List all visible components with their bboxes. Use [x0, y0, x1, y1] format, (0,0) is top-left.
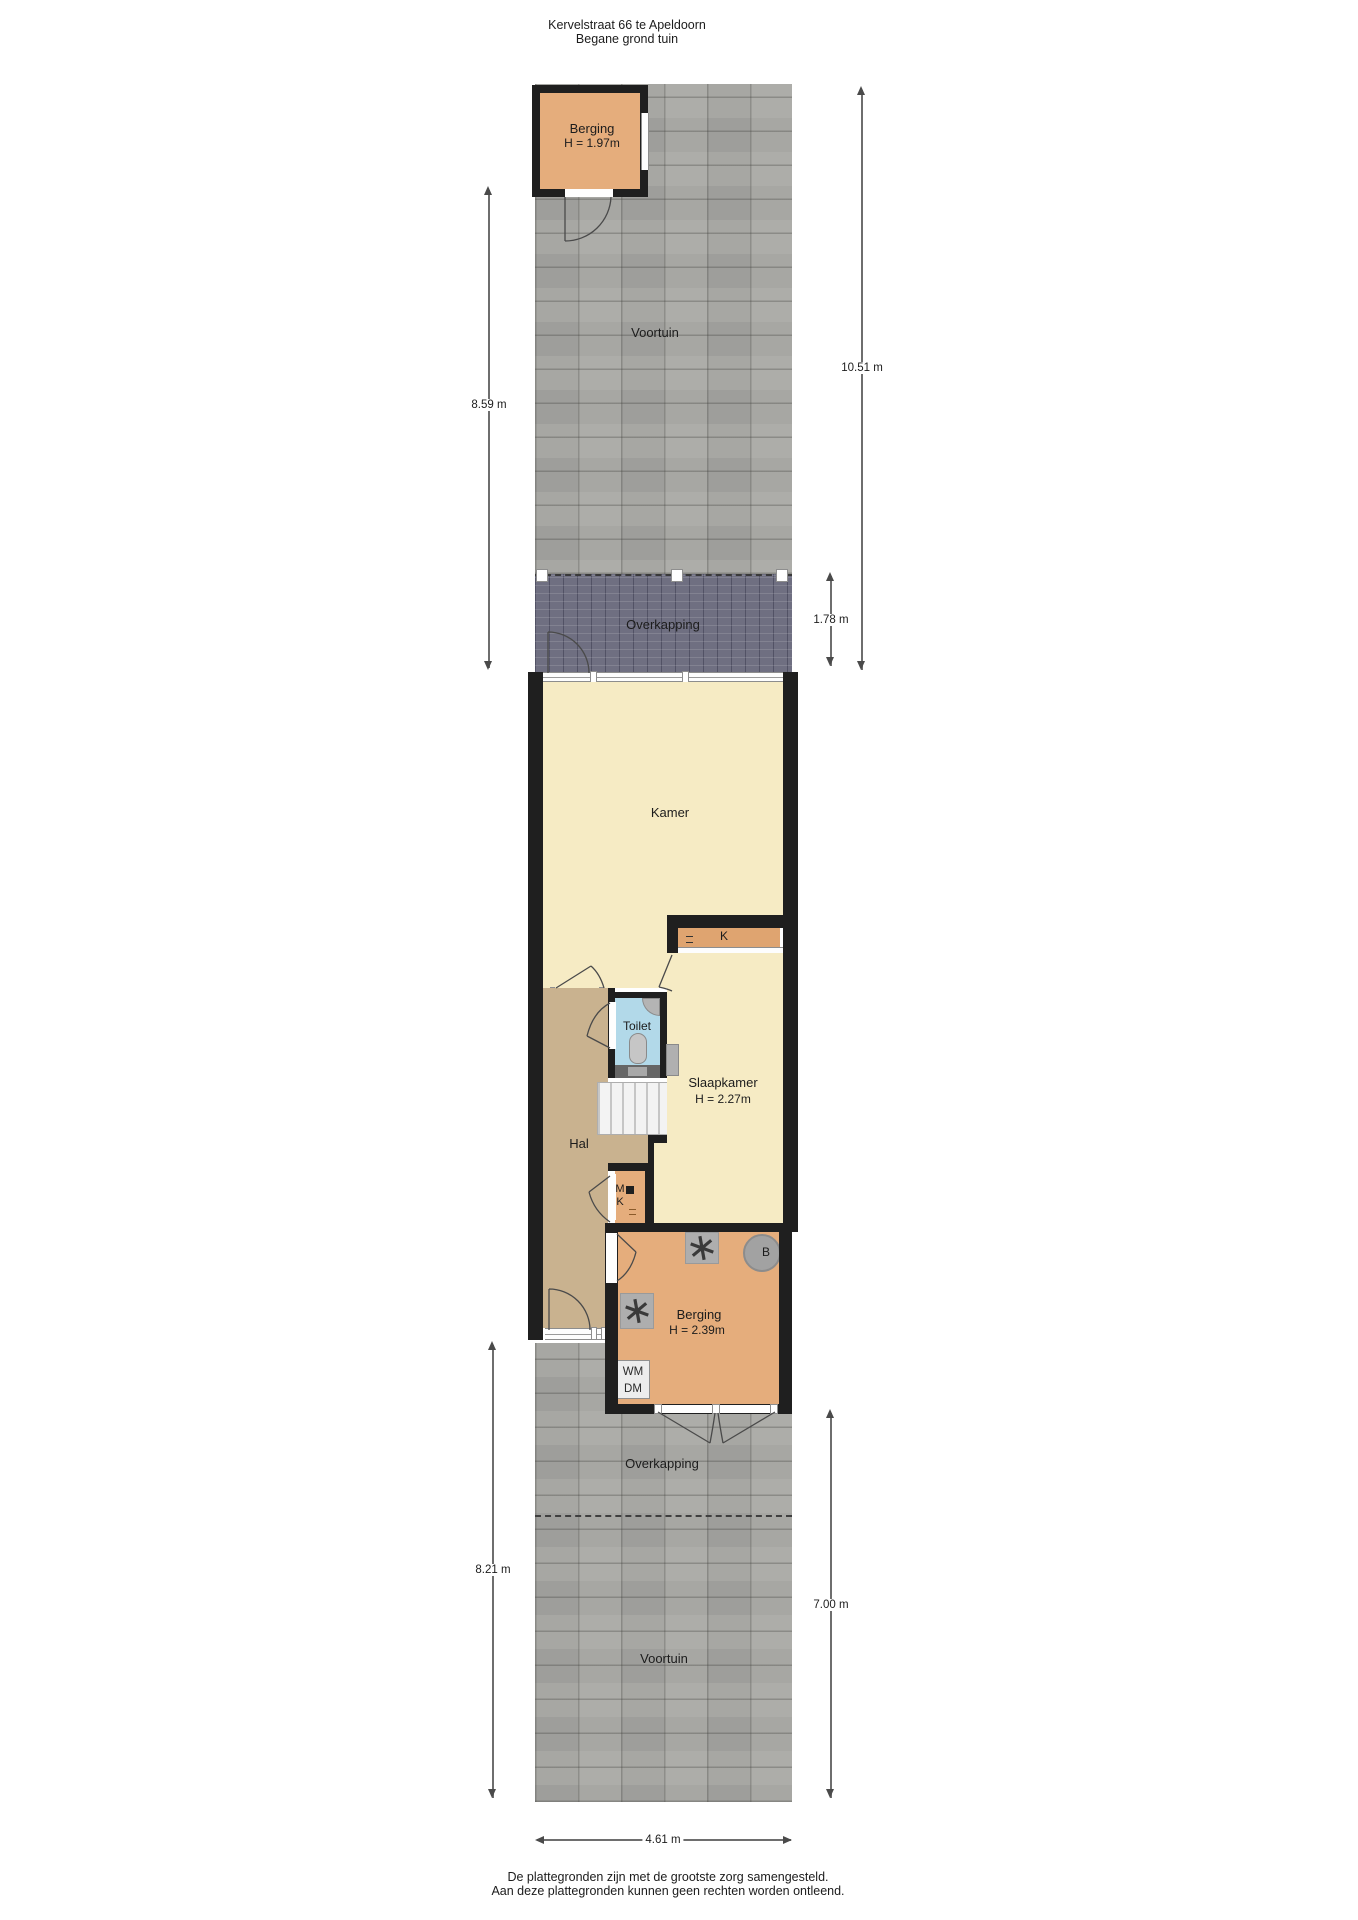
house-wall-left: [528, 672, 543, 1340]
berging-top-door-opening: [565, 189, 613, 197]
disclaimer-line1: De plattegronden zijn met de grootste zo…: [507, 1870, 828, 1884]
patio-post: [671, 569, 683, 582]
arrowhead-icon: [484, 661, 492, 670]
arrowhead-icon: [857, 661, 865, 670]
floorplan-page: Kervelstraat 66 te Apeldoorn Begane gron…: [0, 0, 1358, 1920]
meterkast-mark: [629, 1209, 636, 1215]
radiator-icon: [666, 1044, 679, 1076]
overkapping-voortuin-boundary: [535, 1515, 792, 1517]
meterkast-label-m: M: [615, 1183, 624, 1196]
arrowhead-icon: [484, 186, 492, 195]
kitchen-counter: [678, 928, 780, 947]
kitchen-wall-left: [667, 928, 678, 954]
kitchen-label: K: [720, 930, 728, 944]
door-jamb: [654, 1404, 662, 1414]
berging-bottom-height-label: H = 2.39m: [669, 1324, 725, 1338]
kamer-floor: [543, 682, 783, 922]
toilet-cistern: [628, 1067, 647, 1076]
berging-bottom-wall-right: [779, 1223, 792, 1413]
hal-label: Hal: [569, 1137, 589, 1152]
dim-label-bottom-width: 4.61 m: [642, 1834, 683, 1846]
washer-dryer-box: WM DM: [616, 1360, 650, 1399]
facade-window-front: [545, 1328, 608, 1340]
overkapping-top-label: Overkapping: [626, 618, 700, 633]
dim-line-right-top: [861, 90, 863, 670]
meterkast-wall-top: [608, 1163, 654, 1171]
arrowhead-icon: [826, 1789, 834, 1798]
meterkast-door-opening: [608, 1174, 616, 1220]
dryer-label: DM: [617, 1381, 649, 1398]
kitchen-wall-top: [667, 915, 783, 928]
arrowhead-icon: [535, 1836, 544, 1844]
door-jamb: [770, 1404, 778, 1414]
berging-top-window: [641, 113, 649, 170]
slaapkamer-label: Slaapkamer: [688, 1076, 757, 1091]
toilet-bowl-icon: [629, 1033, 647, 1064]
kamer-label: Kamer: [651, 806, 689, 821]
toilet-label: Toilet: [623, 1020, 651, 1034]
hal-floor: [543, 988, 608, 1328]
dim-label-overkapping: 1.78 m: [810, 614, 851, 626]
arrowhead-icon: [826, 1409, 834, 1418]
window-mullion: [591, 1327, 597, 1340]
ventilation-fan-icon: [685, 1232, 719, 1264]
dim-line-left-top: [488, 190, 490, 668]
arrowhead-icon: [826, 572, 834, 581]
voortuin-bottom-label: Voortuin: [640, 1652, 688, 1667]
toilet-door-opening: [609, 1002, 616, 1049]
cooktop-icon: [686, 936, 693, 943]
voortuin-top-label: Voortuin: [631, 326, 679, 341]
dim-label-right-bottom: 7.00 m: [810, 1599, 851, 1611]
berging-top-height-label: H = 1.97m: [564, 137, 620, 151]
arrowhead-icon: [857, 86, 865, 95]
patio-post: [776, 569, 788, 582]
berging-bottom-wall-top: [608, 1223, 792, 1232]
slaapkamer-height-label: H = 2.27m: [695, 1093, 751, 1107]
ventilation-fan-icon: [620, 1293, 654, 1329]
disclaimer-line2: Aan deze plattegronden kunnen geen recht…: [491, 1884, 844, 1898]
house-wall-right: [783, 672, 798, 1232]
facade-window-top: [543, 672, 783, 682]
arrowhead-icon: [826, 657, 834, 666]
meter-box-icon: [626, 1186, 634, 1194]
dim-label-left-top: 8.59 m: [468, 399, 509, 411]
washer-label: WM: [617, 1364, 649, 1381]
boiler-label: B: [762, 1246, 770, 1260]
page-title: Kervelstraat 66 te Apeldoorn: [548, 18, 706, 32]
dim-label-left-bottom: 8.21 m: [472, 1564, 513, 1576]
page-subtitle: Begane grond tuin: [576, 32, 678, 46]
arrowhead-icon: [488, 1789, 496, 1798]
berging-bottom-label: Berging: [677, 1308, 722, 1323]
arrowhead-icon: [783, 1836, 792, 1844]
meterkast-label-k: K: [616, 1196, 623, 1209]
slaapkamer-floor-extension: [654, 1143, 683, 1223]
patio-post: [536, 569, 548, 582]
berging-hal-door-opening: [606, 1233, 617, 1283]
overkapping-bottom-label: Overkapping: [625, 1457, 699, 1472]
arrowhead-icon: [488, 1341, 496, 1350]
hal-floor-extension: [608, 1135, 648, 1163]
berging-top-label: Berging: [570, 122, 615, 137]
kamer-floor-extension: [543, 922, 667, 988]
dim-label-right-top: 10.51 m: [838, 362, 886, 374]
door-jamb: [712, 1404, 720, 1414]
